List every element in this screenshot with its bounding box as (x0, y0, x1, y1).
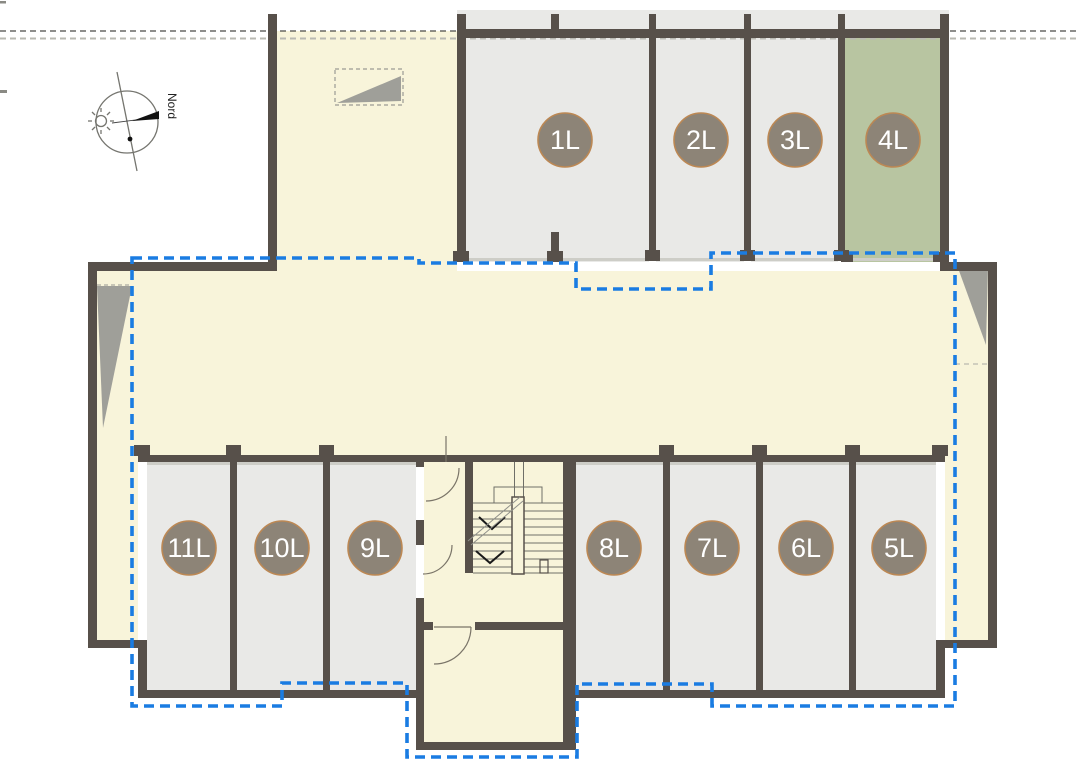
unit-badge-1L[interactable]: 1L (538, 113, 592, 167)
unit-label: 7L (697, 533, 727, 563)
unit-badge-3L[interactable]: 3L (768, 113, 822, 167)
unit-room[interactable] (147, 462, 230, 690)
north-label: Nord (165, 93, 179, 119)
north-compass: Nord (88, 72, 179, 171)
threshold-line (147, 462, 416, 465)
unit-label: 6L (791, 533, 821, 563)
ramp-room (277, 31, 457, 271)
corridor (97, 271, 988, 455)
unit-label: 9L (360, 533, 390, 563)
unit-label: 11L (167, 533, 210, 563)
threshold-line (466, 258, 940, 261)
unit-room[interactable] (330, 462, 416, 690)
edge-tick (0, 1, 6, 4)
unit-label: 4L (878, 125, 908, 155)
upper-band (457, 10, 949, 29)
unit-room[interactable] (856, 462, 936, 690)
unit-room[interactable] (763, 462, 849, 690)
unit-badge-10L[interactable]: 10L (255, 521, 309, 575)
unit-room[interactable] (237, 462, 323, 690)
unit-badge-7L[interactable]: 7L (685, 521, 739, 575)
unit-label: 1L (550, 125, 580, 155)
sun-icon (88, 108, 114, 134)
edge-tick (0, 90, 7, 93)
unit-badge-6L[interactable]: 6L (779, 521, 833, 575)
unit-label: 3L (780, 125, 810, 155)
unit-badge-11L[interactable]: 11L (162, 521, 216, 575)
unit-badge-9L[interactable]: 9L (348, 521, 402, 575)
unit-room[interactable] (670, 462, 756, 690)
unit-badge-4L[interactable]: 4L (866, 113, 920, 167)
corridor-right-strip (945, 455, 988, 640)
unit-label: 8L (599, 533, 629, 563)
unit-label: 10L (259, 533, 304, 563)
unit-label: 5L (884, 533, 914, 563)
unit-badge-8L[interactable]: 8L (587, 521, 641, 575)
unit-badge-5L[interactable]: 5L (872, 521, 926, 575)
unit-label: 2L (686, 125, 716, 155)
north-arrow (132, 111, 159, 121)
floor-plan-canvas: Nord 1L 2L 3L 4L 11L 10L 9L (0, 0, 1076, 780)
unit-badge-2L[interactable]: 2L (674, 113, 728, 167)
unit-room[interactable] (576, 462, 663, 690)
